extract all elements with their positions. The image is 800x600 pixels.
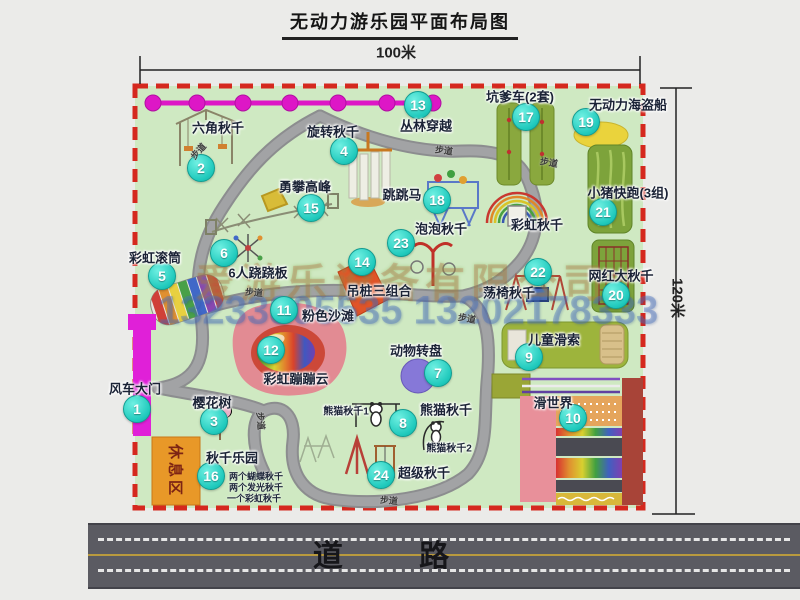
item-badge-23: 23 [387, 229, 415, 257]
panda-swing-1-label: 熊猫秋千1 [323, 403, 369, 418]
item-label-7: 动物转盘 [390, 341, 442, 360]
item-label-19: 无动力海盗船 [589, 95, 667, 114]
item-badge-21: 21 [589, 198, 617, 226]
dimension-right-label: 120米 [668, 278, 689, 318]
item-label-11: 粉色沙滩 [302, 306, 354, 325]
item-badge-1: 1 [123, 395, 151, 423]
item-label-13: 丛林穿越 [400, 116, 452, 135]
item-badge-4: 4 [330, 137, 358, 165]
item-badge-20: 20 [602, 281, 630, 309]
item-label-10: 滑世界 [533, 393, 572, 412]
item-label-5: 彩虹滚筒 [129, 248, 181, 267]
walkway-label-2: 步道 [434, 142, 454, 157]
item-label-9: 儿童滑索 [528, 330, 580, 349]
item-label-12: 彩虹蹦蹦云 [263, 369, 328, 388]
item-badge-8: 8 [389, 409, 417, 437]
item-badge-24: 24 [367, 461, 395, 489]
item-badge-7: 7 [424, 359, 452, 387]
item-label-2: 六角秋千 [192, 118, 244, 137]
panda-swing-2-label: 熊猫秋千2 [426, 440, 472, 455]
item-label-6: 6人跷跷板 [228, 263, 287, 282]
item-badge-14: 14 [348, 248, 376, 276]
page-title: 无动力游乐园平面布局图 [282, 8, 518, 40]
item-label-8: 熊猫秋千 [420, 400, 472, 419]
walkway-label-7: 步道 [379, 493, 398, 508]
item-label-23: 泡泡秋千 [415, 219, 467, 238]
rest-area-label: 休息区 [166, 444, 187, 498]
item-label-21: 小猪快跑(3组) [588, 183, 669, 202]
item-label-24: 超级秋千 [398, 463, 450, 482]
item-label-3: 樱花树 [192, 393, 231, 412]
rainbow-swing-label: 彩虹秋千 [511, 215, 563, 234]
walkway-label-5: 步道 [254, 411, 269, 430]
item-label-15: 勇攀高峰 [279, 177, 331, 196]
walkway-label-4: 步道 [244, 285, 263, 300]
item-label-22: 荡椅秋千 [483, 283, 535, 302]
item-label-1: 风车大门 [109, 379, 161, 398]
road-label: 道 路 [313, 531, 483, 575]
swing-park-note-3: 一个彩虹秋千 [227, 492, 281, 505]
dimension-top-label: 100米 [376, 42, 416, 63]
item-label-16: 秋千乐园 [206, 448, 258, 467]
item-label-14: 吊桩三组合 [346, 281, 411, 300]
item-label-20: 网红大秋千 [588, 266, 653, 285]
item-label-4: 旋转秋千 [307, 122, 359, 141]
item-label-18: 跳跳马 [382, 185, 421, 204]
item-label-17: 坑爹车(2套) [486, 87, 554, 106]
item-badge-11: 11 [270, 296, 298, 324]
item-badge-12: 12 [257, 336, 285, 364]
item-badge-17: 17 [512, 103, 540, 131]
item-badge-18: 18 [423, 186, 451, 214]
item-badge-15: 15 [297, 194, 325, 222]
item-badge-2: 2 [187, 154, 215, 182]
